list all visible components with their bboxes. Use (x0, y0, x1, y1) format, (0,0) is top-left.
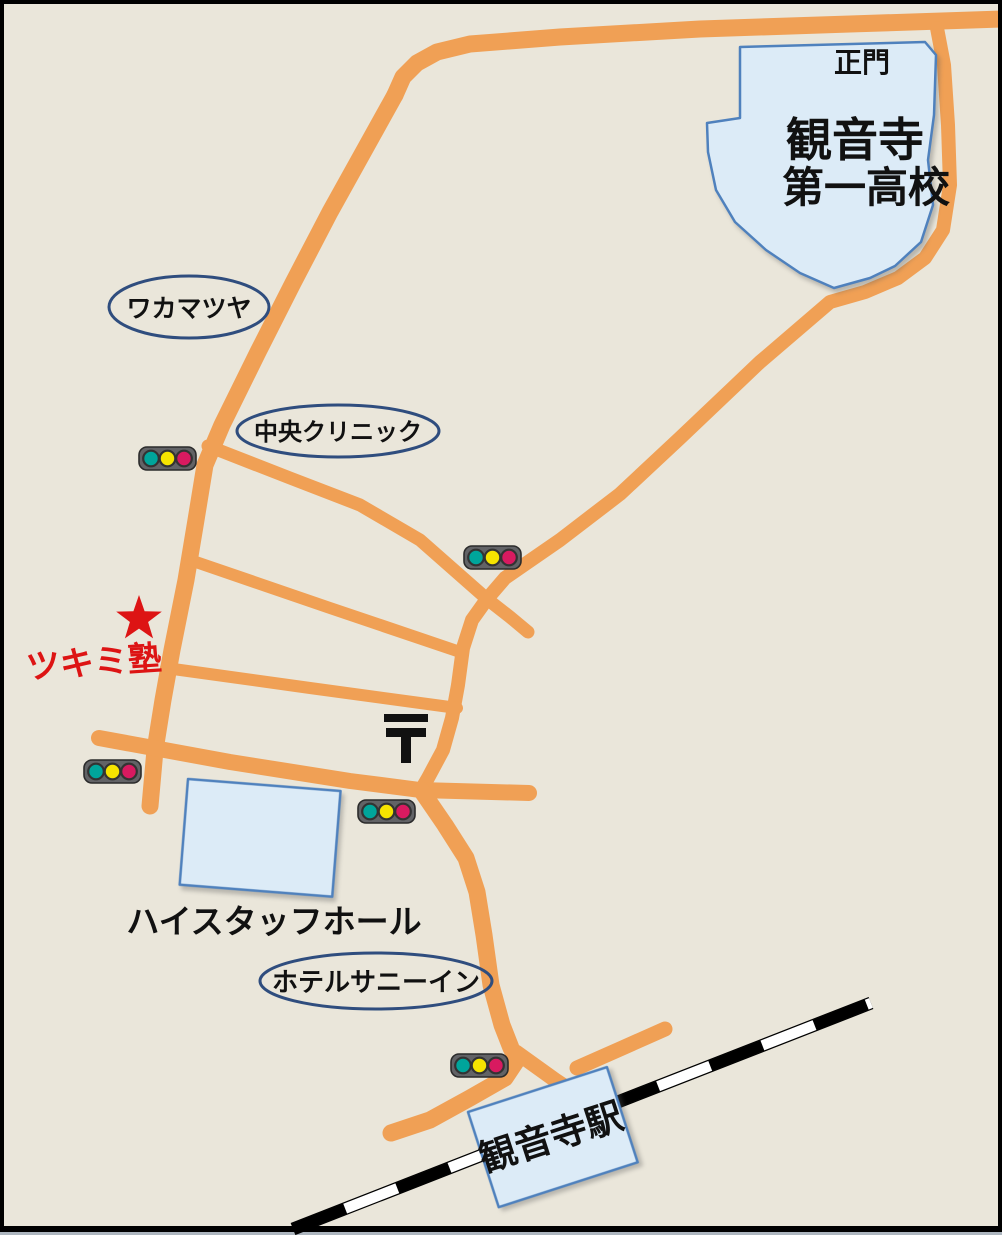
traffic-light-icon (451, 1054, 508, 1077)
school-name-line2: 第一高校 (782, 163, 950, 212)
chuo-clinic-label: 中央クリニック (254, 418, 422, 446)
hotel-sunny-inn-label: ホテルサニーイン (272, 968, 480, 998)
traffic-light-icon (358, 800, 415, 823)
access-map: 正門 観音寺 第一高校 ワカマツヤ 中央クリニック ツキミ塾 ハイスタッフホール… (0, 0, 1002, 1235)
high-staff-hall-label: ハイスタッフホール (126, 902, 421, 941)
school-gate-label: 正門 (834, 46, 890, 79)
traffic-light-icon (139, 447, 196, 470)
traffic-light-icon (464, 546, 521, 569)
wakamatsuya-label: ワカマツヤ (126, 294, 251, 323)
road-east-stub (420, 790, 529, 793)
traffic-light-icon (84, 760, 141, 783)
map-page: 正門 観音寺 第一高校 ワカマツヤ 中央クリニック ツキミ塾 ハイスタッフホール… (0, 0, 1002, 1235)
hall-building (180, 779, 341, 897)
school-name-line1: 観音寺 (786, 113, 924, 167)
